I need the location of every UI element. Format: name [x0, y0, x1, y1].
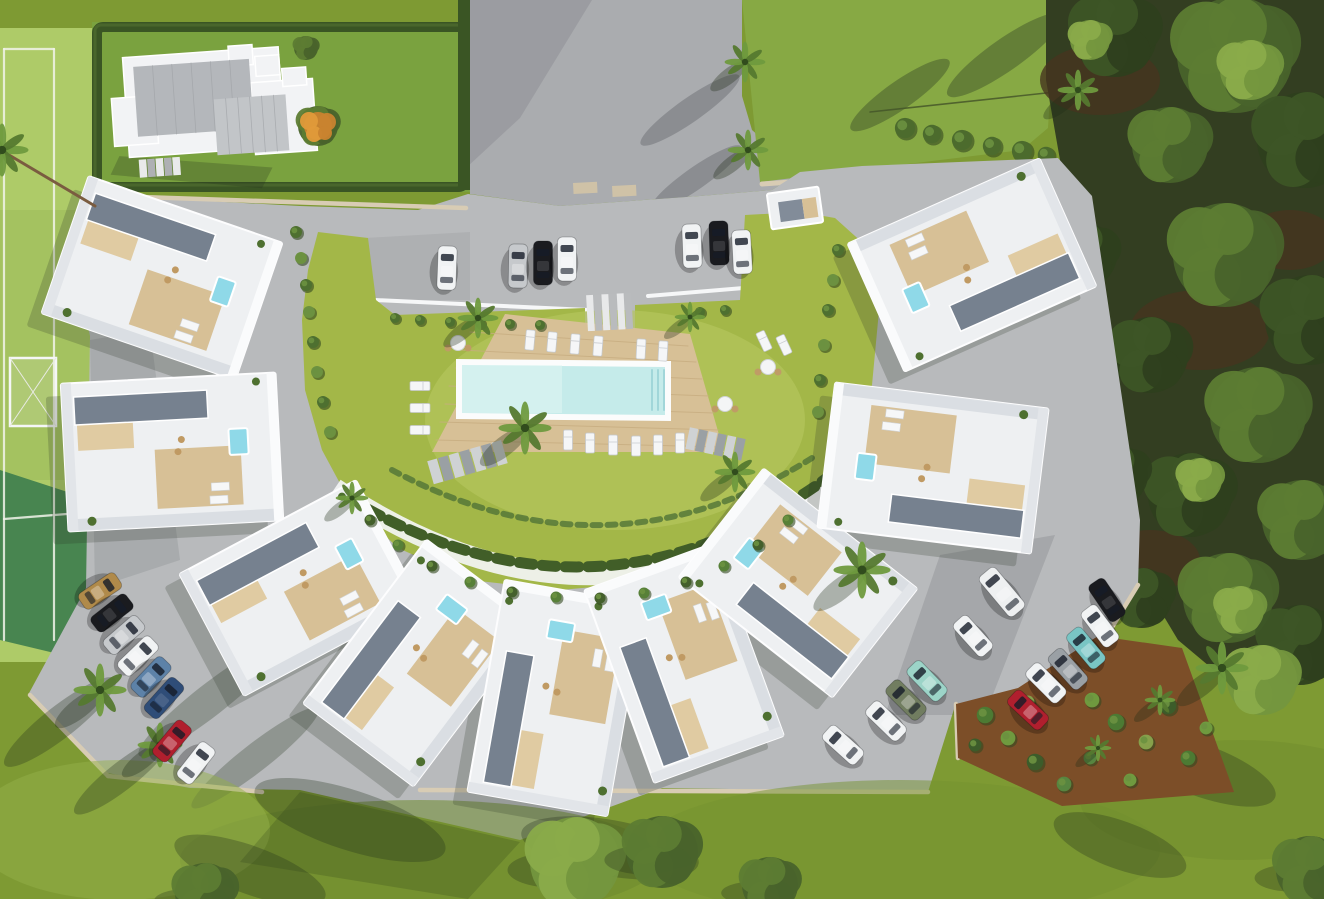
driveway-hedge	[458, 0, 470, 190]
tree-foliage	[304, 46, 316, 58]
gravel-roof-strip	[73, 390, 208, 425]
tree-foliage	[646, 816, 682, 852]
tree-foliage	[1235, 607, 1260, 632]
plunge-pool	[546, 619, 575, 642]
palm-crown	[1075, 87, 1081, 93]
bush-highlight	[391, 314, 396, 319]
stair-step	[155, 158, 164, 176]
apartment-building	[817, 382, 1048, 553]
table-top	[718, 397, 733, 412]
lounger-bed	[410, 382, 430, 391]
palm-crown	[1096, 746, 1100, 750]
palm-crown	[475, 315, 481, 321]
car-windshield	[441, 254, 454, 261]
house-walls	[282, 67, 307, 87]
car-roof	[512, 264, 524, 274]
sun-lounger	[410, 382, 430, 391]
roof-terrace-deck	[864, 405, 956, 473]
bush-highlight	[508, 588, 513, 593]
tree-foliage	[1202, 203, 1254, 255]
sports-field	[0, 28, 92, 662]
bush-highlight	[784, 516, 789, 521]
patio-chair	[465, 345, 472, 352]
apartment-building	[61, 372, 283, 531]
palm-crown	[858, 566, 867, 575]
tree-foliage	[1215, 248, 1269, 302]
car-rear-window	[736, 261, 749, 268]
bush-highlight	[640, 589, 645, 594]
palm-crown	[521, 424, 529, 432]
sun-lounger	[586, 433, 595, 453]
bush-highlight	[897, 120, 907, 130]
bush-highlight	[366, 516, 371, 521]
bush-highlight	[308, 337, 314, 343]
lounger-bed	[636, 339, 646, 359]
car-roof	[713, 241, 725, 251]
lounger-bed	[654, 435, 663, 455]
tree-foliage	[301, 36, 313, 48]
car-roof	[537, 261, 549, 271]
tree-foliage	[1236, 367, 1284, 415]
bush-highlight	[823, 305, 829, 311]
tree-foliage	[1142, 350, 1182, 390]
bush-highlight	[1029, 756, 1037, 764]
lounger-bed	[593, 336, 603, 357]
plunge-pool	[228, 428, 248, 455]
bush-highlight	[754, 541, 759, 546]
tree-foliage	[1248, 408, 1298, 458]
bush-highlight	[596, 594, 601, 599]
stair-step	[147, 159, 156, 177]
bush-highlight	[828, 275, 834, 281]
bush-highlight	[682, 578, 687, 583]
patio-chair	[755, 369, 762, 376]
bush-highlight	[1086, 694, 1093, 701]
lounger-bed	[570, 334, 580, 355]
house-stairs	[139, 157, 181, 178]
bush-highlight	[954, 132, 964, 142]
car-windshield	[712, 229, 725, 236]
tree-foliage	[1153, 107, 1191, 145]
lounger-bed	[410, 426, 430, 435]
tree-foliage	[1133, 317, 1171, 355]
tree-foliage	[1255, 675, 1291, 711]
pool-house	[767, 187, 824, 230]
tree-foliage	[555, 817, 600, 862]
lounger-bed	[632, 436, 641, 456]
tree-foliage	[1244, 66, 1275, 97]
gate-wall	[573, 182, 598, 194]
car-rear-window	[440, 277, 453, 283]
car-roof	[736, 250, 749, 261]
gate-wall	[612, 185, 637, 197]
stair-step	[164, 157, 173, 175]
bush-highlight	[466, 578, 471, 583]
palm-crown	[745, 147, 751, 153]
tree-foliage	[1282, 605, 1322, 645]
bush-highlight	[813, 407, 819, 413]
pool-house-gravel	[778, 199, 805, 222]
pool-house-deck	[802, 197, 819, 219]
bush-highlight	[394, 541, 399, 546]
bush-highlight	[416, 316, 421, 321]
car-rear-window	[537, 272, 550, 278]
pool-reflection	[462, 365, 562, 413]
lounger-bed	[586, 433, 595, 453]
sun-lounger	[658, 341, 668, 361]
bush-highlight	[325, 427, 331, 433]
lounger-bed	[547, 332, 558, 353]
bush-highlight	[1201, 723, 1207, 729]
car-windshield	[685, 232, 698, 239]
bush-highlight	[1058, 778, 1065, 785]
sun-lounger	[654, 435, 663, 455]
patio-chair	[775, 369, 782, 376]
bush-highlight	[815, 375, 821, 381]
sun-lounger	[609, 435, 618, 455]
bush-highlight	[1040, 149, 1048, 157]
house-walls	[255, 55, 280, 77]
aerial-site-plan-render	[0, 0, 1324, 899]
patio-chair	[732, 406, 739, 413]
tree-foliage	[655, 847, 692, 884]
tree-foliage	[1162, 140, 1202, 180]
bush-highlight	[979, 709, 987, 717]
car-windshield	[512, 252, 525, 259]
tree-foliage	[192, 863, 222, 893]
sun-lounger	[525, 330, 536, 351]
palm-crown	[1158, 698, 1163, 703]
car-roof	[561, 257, 573, 267]
sun-lounger	[410, 404, 430, 413]
car-rear-window	[511, 275, 524, 281]
bush-highlight	[970, 740, 976, 746]
sun-lounger	[570, 334, 580, 355]
tree-foliage	[1284, 480, 1324, 520]
car-roof	[441, 266, 453, 276]
palm-crown	[1218, 664, 1226, 672]
car-rear-window	[713, 252, 726, 258]
palm-crown	[732, 469, 738, 475]
lounger-bed	[525, 330, 536, 351]
tree-foliage	[1086, 37, 1107, 58]
bush-highlight	[1125, 775, 1131, 781]
sun-lounger	[632, 436, 641, 456]
bush-highlight	[428, 562, 433, 567]
tree-foliage	[1136, 594, 1167, 625]
lounger-bed	[609, 435, 618, 455]
bush-highlight	[1140, 736, 1147, 743]
plunge-pool	[855, 453, 877, 481]
car-rear-window	[686, 255, 699, 261]
sun-lounger	[676, 433, 685, 453]
lounger-bed	[658, 341, 668, 361]
tree-foliage	[1190, 458, 1212, 480]
sun-lounger	[636, 339, 646, 359]
tree-foliage	[1107, 29, 1151, 73]
tree-foliage	[1237, 40, 1267, 70]
tree-foliage	[1081, 20, 1101, 40]
bush-highlight	[536, 321, 541, 326]
aerial-view-container	[0, 0, 1324, 899]
bush-highlight	[1002, 732, 1009, 739]
bush-highlight	[318, 397, 324, 403]
stair-step	[139, 159, 148, 177]
tree	[739, 857, 802, 899]
bush-highlight	[552, 593, 557, 598]
tree-foliage	[1196, 477, 1219, 500]
lounger-bed	[676, 433, 685, 453]
lounger-bed	[564, 430, 573, 450]
palm-crown	[742, 59, 748, 65]
lounger-bed	[410, 404, 430, 413]
terrace-lounger	[210, 495, 228, 504]
bush-highlight	[1110, 716, 1118, 724]
tree-foliage	[1246, 645, 1281, 680]
bush-highlight	[446, 318, 451, 323]
stair-step	[172, 157, 181, 175]
bush-highlight	[296, 253, 302, 259]
palm-crown	[349, 495, 354, 500]
bush-highlight	[985, 139, 994, 148]
car-rear-window	[561, 268, 574, 274]
patio-chair	[712, 406, 719, 413]
bush-highlight	[833, 245, 839, 251]
car-windshield	[537, 249, 550, 256]
car-roof	[686, 244, 698, 254]
bush-highlight	[506, 320, 511, 325]
bush-highlight	[720, 562, 725, 567]
bush-highlight	[1014, 143, 1024, 153]
private-garden	[92, 22, 470, 199]
sun-lounger	[410, 426, 430, 435]
tree-foliage	[757, 857, 785, 885]
tree-foliage	[1229, 586, 1253, 610]
bush-highlight	[925, 127, 934, 136]
terrace-lounger	[211, 482, 229, 491]
bush-highlight	[312, 367, 318, 373]
bush-highlight	[304, 307, 310, 313]
sun-lounger	[564, 430, 573, 450]
bush-highlight	[819, 340, 825, 346]
palm-crown	[96, 686, 104, 694]
table-top	[761, 360, 776, 375]
car-windshield	[561, 245, 574, 252]
bush-highlight	[291, 227, 297, 233]
palm-crown	[688, 315, 693, 320]
bush-highlight	[1182, 752, 1189, 759]
orange-foliage	[318, 126, 332, 140]
sun-lounger	[547, 332, 558, 353]
bush-highlight	[721, 306, 726, 311]
car-windshield	[735, 238, 748, 246]
bush-highlight	[301, 280, 307, 286]
sun-lounger	[593, 336, 603, 357]
